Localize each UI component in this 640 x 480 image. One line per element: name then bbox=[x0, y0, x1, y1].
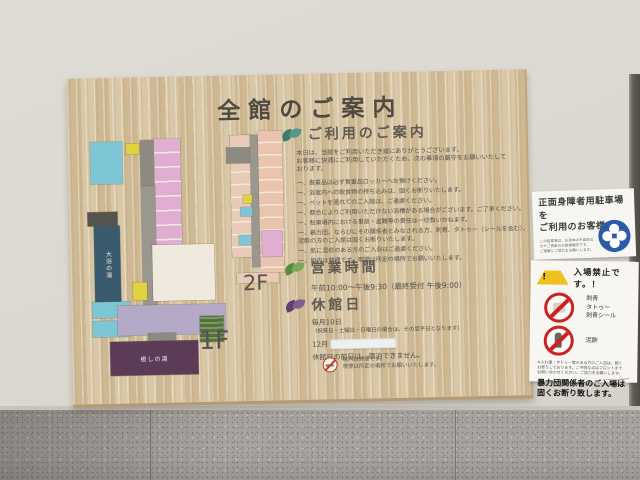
no-entry-title: 入場禁止です。！ bbox=[573, 266, 633, 291]
leaf-icon bbox=[285, 298, 305, 311]
floor-label-1f: 1F bbox=[199, 326, 230, 356]
no-drunk-icon bbox=[544, 325, 574, 355]
tattoo-row: 刺青 タトゥー 刺青シール bbox=[544, 292, 633, 323]
smoking-line: 喫煙は所定の場所でお願いいたします。 bbox=[343, 362, 440, 371]
closed-december-prefix: 12月 bbox=[312, 340, 328, 348]
hours-heading: 営業時間 bbox=[284, 253, 524, 278]
plan2f-room-pink bbox=[262, 230, 283, 256]
plan-bath-purple-label: 癒しの湯 bbox=[140, 353, 168, 363]
closed-heading: 休館日 bbox=[285, 290, 525, 315]
drunk-row: 泥酔 bbox=[544, 325, 633, 356]
plan-room-cyan-large bbox=[90, 142, 123, 185]
plan-bath-blue: 大浴の湯 bbox=[94, 226, 122, 305]
plan-bath-purple: 癒しの湯 bbox=[110, 340, 199, 376]
leaf-icon bbox=[284, 261, 304, 274]
section-hours: 営業時間 午前10:00〜午後9:30（最終受付 午後9:00） bbox=[284, 253, 525, 294]
plan-block-gray bbox=[140, 140, 154, 186]
plan-room-yellow-2 bbox=[133, 282, 147, 300]
parking-small-line: ご理解とご協力をお願いします。 bbox=[540, 248, 594, 255]
warning-triangle-icon bbox=[537, 270, 569, 284]
parking-notice-smalltext: この駐車場は、お身体の不自由な 方やご高齢のお客様優先です。 ご理解とご協力をお… bbox=[540, 238, 594, 255]
rule-item: 一、暴力団、ならびにその関係者とみなされる方、刺青、タトゥー（シールを含む）、泥… bbox=[298, 225, 530, 245]
bold-warning-line: 固くお断り致します。 bbox=[537, 388, 632, 399]
photo-scene: 全館のご案内 大浴の湯 癒しの湯 bbox=[0, 0, 640, 480]
no-entry-title-row: 入場禁止です。！ bbox=[536, 265, 633, 290]
tattoo-labels: 刺青 タトゥー 刺青シール bbox=[586, 295, 616, 321]
plan-bath-blue-label: 大浴の湯 bbox=[104, 251, 111, 279]
tattoo-mark bbox=[553, 303, 565, 313]
no-smoking-icon bbox=[322, 357, 337, 372]
usage-guide-heading: ご利用のご案内 bbox=[282, 119, 522, 144]
info-board: 全館のご案内 大浴の湯 癒しの湯 bbox=[67, 69, 534, 408]
parking-notice: 正面身障者用駐車場を ご利用のお客様へ この駐車場は、お身体の不自由な 方やご高… bbox=[532, 188, 636, 260]
drunk-figure-mark bbox=[555, 333, 562, 348]
smoking-note-text: 館内は禁煙です。 喫煙は所定の場所でお願いいたします。 bbox=[342, 355, 439, 371]
section-usage-guide: ご利用のご案内 本日は、当館をご利用いただき誠にありがとうございます。 お客様に… bbox=[282, 119, 525, 268]
leaf-icon bbox=[282, 127, 302, 140]
usage-guide-heading-text: ご利用のご案内 bbox=[308, 121, 427, 143]
plan-room-yellow bbox=[126, 143, 139, 154]
plan2f-block-gray bbox=[226, 147, 250, 163]
no-entry-notice: 入場禁止です。！ 刺青 タトゥー 刺青シール 泥酔 ※入れ墨・タトゥー等のある方… bbox=[529, 260, 639, 382]
tattoo-label: 刺青シール bbox=[586, 312, 616, 321]
plan2f-room-yellow bbox=[243, 195, 252, 203]
floor-label-2f: 2F bbox=[243, 271, 269, 296]
plan-hall-white bbox=[152, 244, 215, 301]
no-tattoo-icon bbox=[544, 292, 574, 322]
drunk-label: 泥酔 bbox=[586, 337, 598, 346]
granite-seam bbox=[150, 410, 151, 480]
tattoo-label: 刺青 bbox=[586, 295, 616, 304]
plan2f-room-cyan bbox=[240, 207, 252, 216]
hours-heading-text: 営業時間 bbox=[310, 256, 378, 277]
plan-block-darkgray bbox=[87, 212, 117, 227]
redaction-tape bbox=[330, 338, 396, 349]
usage-rules-list: 一、貴重品は必ず貴重品ロッカーへお預けください。 一、浴室内への飲食物の持ち込み… bbox=[297, 175, 525, 265]
closed-line-december: 12月 bbox=[312, 335, 526, 349]
granite-seam bbox=[455, 410, 456, 480]
usage-guide-intro: 本日は、当館をご利用いただき誠にありがとうございます。 お客様に快適にご利用して… bbox=[296, 145, 522, 174]
smoking-note: 館内は禁煙です。 喫煙は所定の場所でお願いいたします。 bbox=[322, 355, 439, 372]
closed-heading-text: 休館日 bbox=[311, 294, 362, 315]
floor-plan-2f bbox=[226, 130, 287, 285]
no-entry-bold-warning: 暴力団関係者のご入場は 固くお断り致します。 bbox=[537, 378, 632, 399]
plan2f-room-cyan-2 bbox=[239, 235, 251, 245]
accessibility-clover-icon bbox=[597, 218, 632, 253]
granite-wainscot bbox=[0, 406, 640, 480]
section-closed-days: 休館日 毎月10日 （祝祭日・土曜日・日曜日の場合は、その翌平日となります） 1… bbox=[285, 290, 526, 363]
